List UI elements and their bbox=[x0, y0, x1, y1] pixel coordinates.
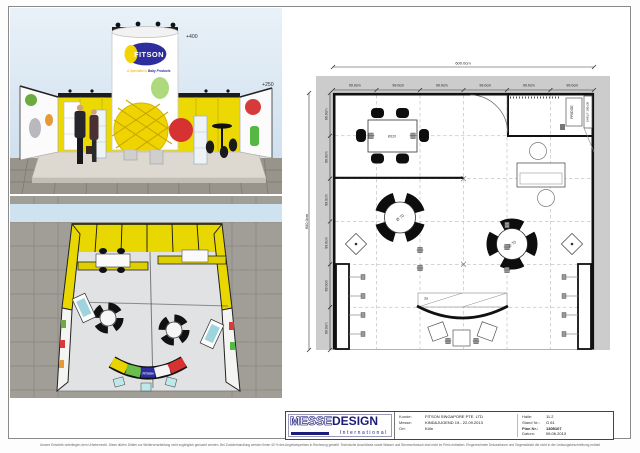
dim-seg-top-1: 99.0cm bbox=[349, 84, 361, 88]
shelf-label: SHELF 100x30 bbox=[586, 102, 590, 123]
dim-seg-top-6: 99.0cm bbox=[566, 84, 578, 88]
counter-label: 3a bbox=[424, 297, 428, 301]
fields-left: Kunde: FITSON SINGAPORE PTE. LTD Messe: … bbox=[399, 414, 518, 437]
pear-graphic bbox=[151, 77, 169, 99]
rect-table-label: Ø120 bbox=[388, 134, 396, 138]
logo-messe-text: MESSE bbox=[290, 414, 332, 428]
back-wall-top bbox=[69, 224, 225, 252]
heart-graphic bbox=[245, 99, 261, 115]
dim-seg-top-5: 99.0cm bbox=[523, 84, 535, 88]
dim-seg-left-6: 99.0cm bbox=[325, 323, 329, 335]
copyright-disclaimer: Unsere Entwürfe unterliegen dem Urheberr… bbox=[40, 443, 600, 447]
right-return-wall bbox=[240, 88, 272, 158]
broccoli-graphic bbox=[25, 94, 37, 106]
dim-seg-top-2: 99.0cm bbox=[392, 84, 404, 88]
field-kunde: Kunde: FITSON SINGAPORE PTE. LTD bbox=[399, 415, 517, 420]
dim-seg-left-4: 99.0cm bbox=[325, 237, 329, 249]
tomato-graphic bbox=[169, 118, 193, 142]
height-label-side: +250 bbox=[262, 82, 274, 88]
field-stand-nr: Stand Nr.: G 61 bbox=[522, 421, 609, 426]
fridge-symbol bbox=[566, 98, 582, 126]
top-view-render: FITSON bbox=[10, 196, 282, 398]
dim-seg-left-3: 99.0cm bbox=[325, 194, 329, 206]
title-block-fields: Kunde: FITSON SINGAPORE PTE. LTD Messe: … bbox=[395, 412, 613, 439]
dim-overall-left: 600.0cm bbox=[304, 213, 309, 229]
tagline-left: A Specialist in bbox=[126, 69, 147, 73]
dim-seg-top-4: 99.0cm bbox=[479, 84, 491, 88]
title-block: MESSEDESIGN International Kunde: FITSON … bbox=[285, 411, 614, 440]
fields-right: Halle: 11.2 Stand Nr.: G 61 Plan Nr.: 13… bbox=[522, 414, 609, 437]
field-ort: Ort: Köln bbox=[399, 427, 517, 432]
tagline-right: Baby Products bbox=[148, 69, 171, 73]
front-view-render: FITSON A Specialist in Baby Products +40… bbox=[10, 8, 282, 194]
dim-overall-top: 600.0cm bbox=[455, 61, 471, 66]
field-messe: Messe: KIND&JUGEND 19.- 22.09.2013 bbox=[399, 421, 517, 426]
dim-seg-left-2: 99.0cm bbox=[325, 151, 329, 163]
bear-graphic bbox=[45, 114, 53, 126]
plan-sheet: { "sheet": { "disclaimer": "Unsere Entwü… bbox=[0, 0, 640, 453]
logo-underline-bar bbox=[291, 432, 329, 436]
floor-plan: FRIDGE SHELF 100x30 Ø120 Ø 70 Ø 70 bbox=[296, 52, 618, 358]
dim-seg-top-3: 99.0cm bbox=[436, 84, 448, 88]
bunny-graphic bbox=[29, 118, 41, 138]
fridge-label: FRIDGE bbox=[570, 105, 574, 119]
booth-platform bbox=[32, 152, 266, 178]
fitson-logo-text: FITSON bbox=[134, 50, 164, 59]
logo-subtitle: International bbox=[340, 430, 388, 436]
logo-design-text: DESIGN bbox=[332, 414, 378, 428]
platform-edge bbox=[32, 178, 266, 183]
dim-seg-left-5: 99.0cm bbox=[325, 280, 329, 292]
dim-seg-left-1: 99.0cm bbox=[325, 109, 329, 121]
height-label-top: +400 bbox=[186, 34, 198, 40]
sky-strip bbox=[10, 204, 282, 222]
field-datum: Datum: 06.06.2013 bbox=[522, 432, 609, 437]
field-halle: Halle: 11.2 bbox=[522, 415, 609, 420]
counter-brand-text: FITSON bbox=[143, 371, 154, 375]
bottle-graphic bbox=[250, 126, 259, 146]
messedesign-logo: MESSEDESIGN International bbox=[286, 412, 395, 439]
